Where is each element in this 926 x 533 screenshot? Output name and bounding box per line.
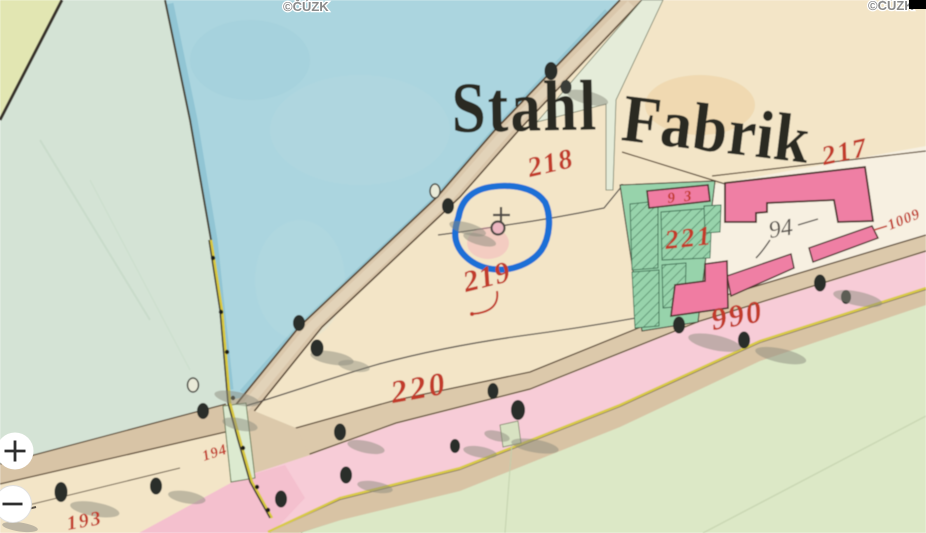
svg-text:©ČÚZK: ©ČÚZK [283,0,329,14]
svg-text:Stahl: Stahl [451,66,599,148]
svg-text:94: 94 [767,214,795,243]
svg-text:©ČÚZK: ©ČÚZK [868,0,914,13]
svg-text:221: 221 [662,220,714,255]
